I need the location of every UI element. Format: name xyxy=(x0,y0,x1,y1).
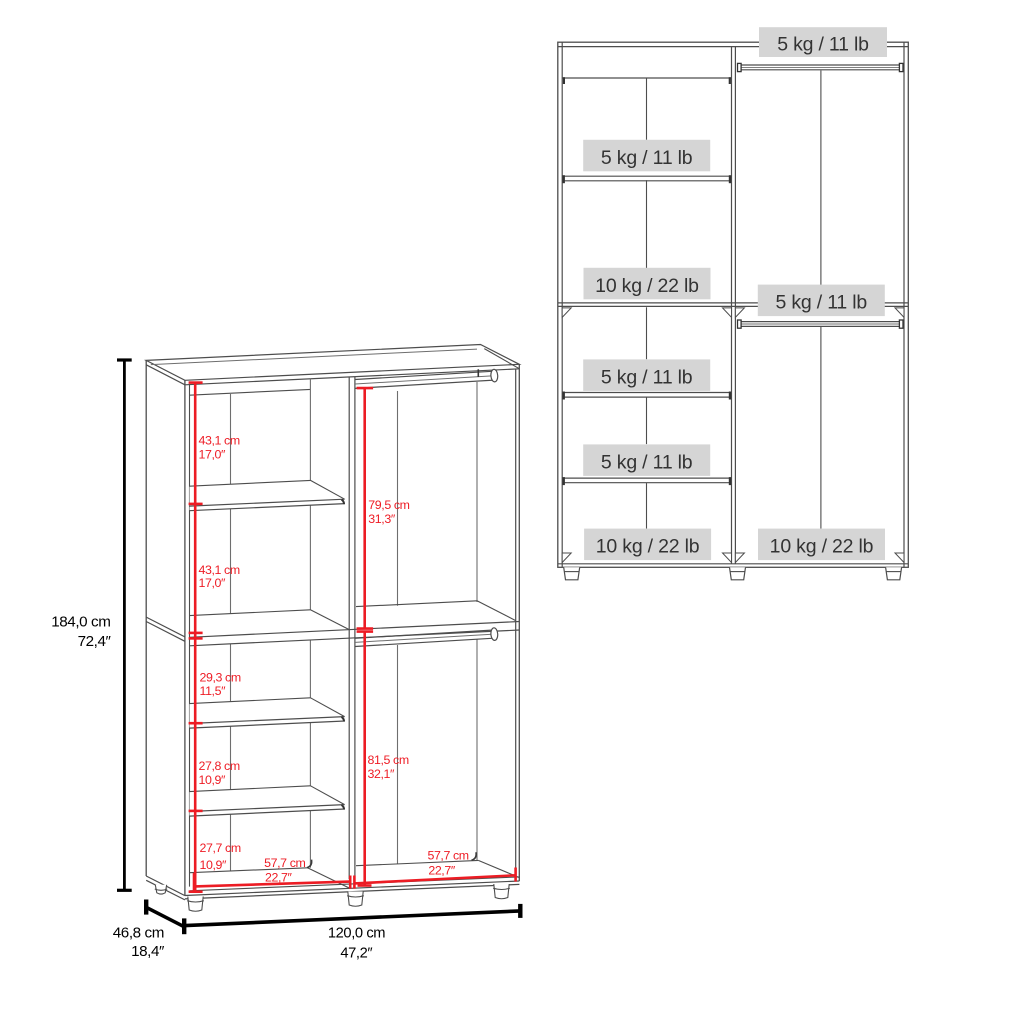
svg-text:10,9″: 10,9″ xyxy=(200,858,228,872)
svg-text:11,5″: 11,5″ xyxy=(200,684,227,698)
svg-text:5 kg / 11 lb: 5 kg / 11 lb xyxy=(601,147,693,169)
svg-text:22,7″: 22,7″ xyxy=(265,871,293,885)
svg-text:43,1 cm: 43,1 cm xyxy=(199,433,240,447)
svg-text:57,7 cm: 57,7 cm xyxy=(264,856,305,870)
svg-text:79,5 cm: 79,5 cm xyxy=(368,498,409,512)
svg-text:5 kg / 11 lb: 5 kg / 11 lb xyxy=(601,451,693,473)
svg-text:10 kg / 22 lb: 10 kg / 22 lb xyxy=(596,536,700,558)
svg-text:18,4″: 18,4″ xyxy=(131,943,165,960)
svg-text:72,4″: 72,4″ xyxy=(78,633,112,650)
svg-text:46,8 cm: 46,8 cm xyxy=(113,925,164,942)
svg-text:17,0″: 17,0″ xyxy=(199,576,227,590)
svg-text:32,1″: 32,1″ xyxy=(368,767,396,781)
svg-text:10 kg / 22 lb: 10 kg / 22 lb xyxy=(595,275,699,297)
svg-text:57,7 cm: 57,7 cm xyxy=(427,848,468,862)
svg-text:43,1 cm: 43,1 cm xyxy=(199,563,240,577)
svg-text:5 kg / 11 lb: 5 kg / 11 lb xyxy=(601,366,693,388)
svg-text:47,2″: 47,2″ xyxy=(340,946,372,962)
svg-text:29,3 cm: 29,3 cm xyxy=(200,671,241,685)
svg-text:31,3″: 31,3″ xyxy=(368,512,396,526)
svg-text:17,0″: 17,0″ xyxy=(199,447,227,461)
svg-text:184,0 cm: 184,0 cm xyxy=(51,613,110,630)
svg-text:27,8 cm: 27,8 cm xyxy=(199,759,240,773)
svg-text:10 kg / 22 lb: 10 kg / 22 lb xyxy=(770,536,874,558)
svg-text:120,0 cm: 120,0 cm xyxy=(328,926,385,942)
svg-text:5 kg / 11 lb: 5 kg / 11 lb xyxy=(777,33,869,55)
svg-text:5 kg / 11 lb: 5 kg / 11 lb xyxy=(776,292,868,314)
svg-text:81,5 cm: 81,5 cm xyxy=(368,753,409,767)
svg-text:10,9″: 10,9″ xyxy=(199,773,227,787)
svg-text:22,7″: 22,7″ xyxy=(428,863,456,877)
svg-text:27,7 cm: 27,7 cm xyxy=(200,841,241,855)
